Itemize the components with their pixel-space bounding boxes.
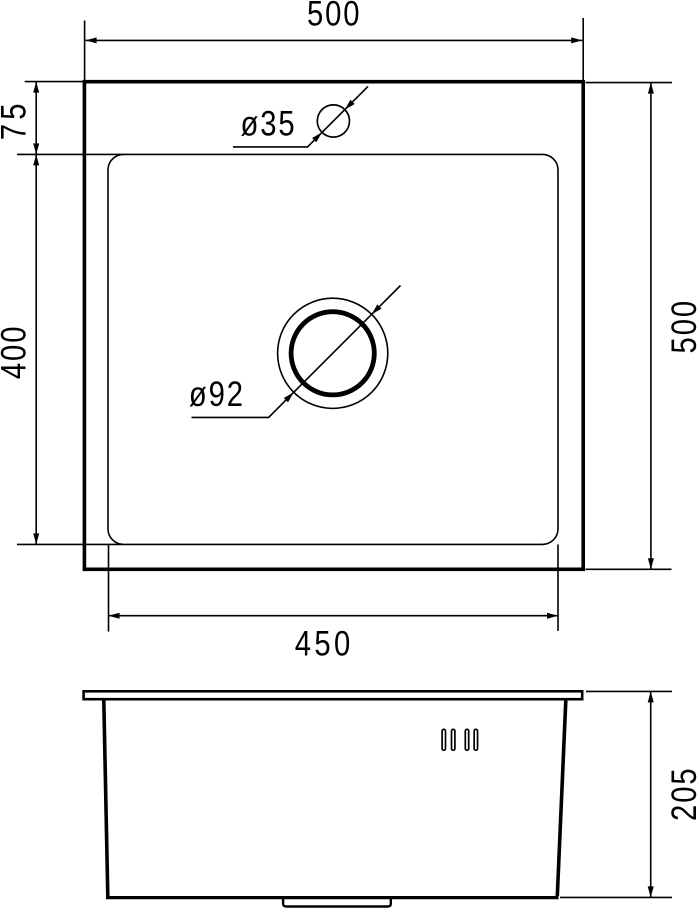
svg-text:ø35: ø35 [240, 104, 296, 143]
svg-text:205: 205 [665, 766, 698, 821]
svg-text:500: 500 [307, 0, 362, 33]
svg-text:500: 500 [664, 299, 698, 354]
svg-text:450: 450 [295, 624, 354, 663]
svg-text:75: 75 [0, 99, 33, 140]
svg-text:400: 400 [0, 325, 33, 380]
svg-text:ø92: ø92 [189, 375, 245, 414]
